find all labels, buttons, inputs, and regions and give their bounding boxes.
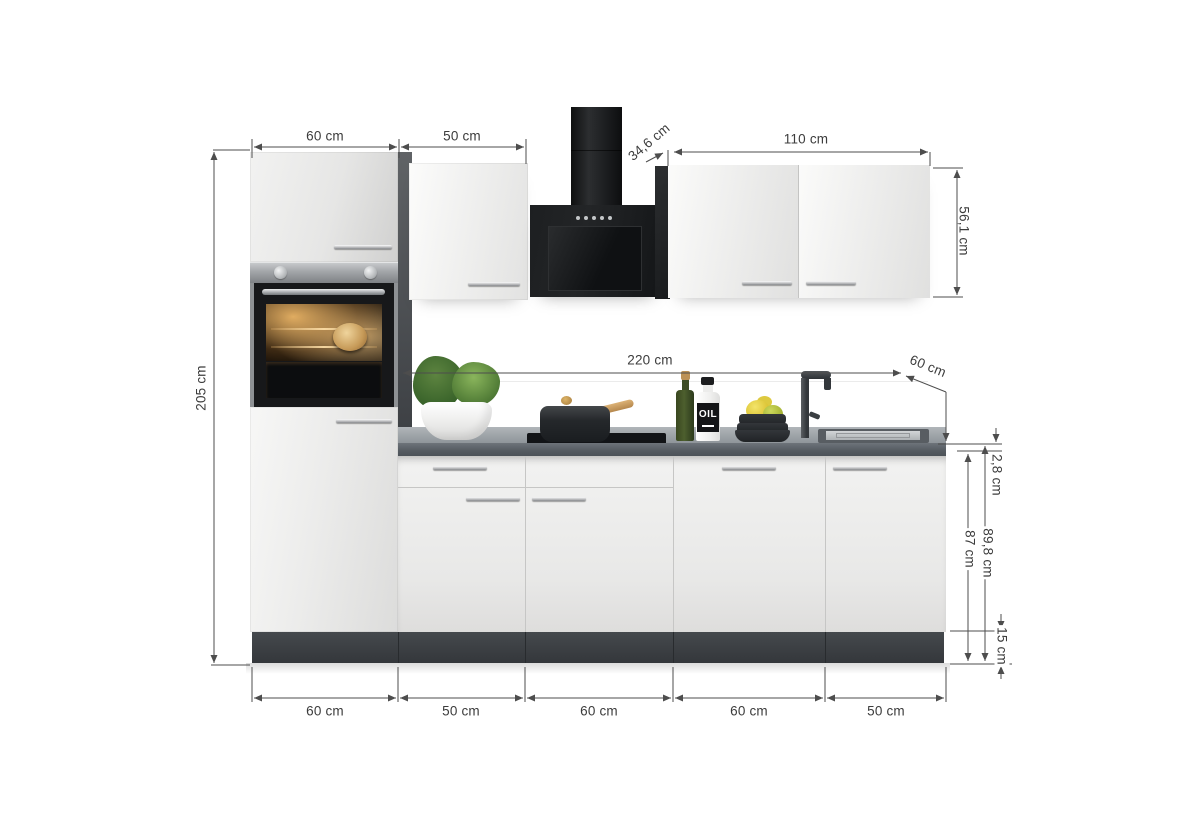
plinth-seam (825, 632, 826, 663)
hood-chimney-seam (571, 150, 622, 151)
plinth-seam (673, 632, 674, 663)
hood-glass-panel (548, 226, 642, 291)
faucet-lever (808, 411, 820, 420)
saucepan (540, 406, 610, 442)
upper-cabinet-50 (409, 163, 528, 300)
oil-bottle-green (676, 390, 694, 441)
base-drawer-handle (433, 466, 487, 470)
wall-cabinet-110 (668, 165, 930, 298)
dim-label-base-height: 87 cm (963, 528, 978, 570)
cabinet-seam (673, 456, 674, 632)
bowl (735, 430, 790, 442)
oven-door-handle (262, 289, 385, 295)
faucet-base (797, 431, 813, 440)
hood-chimney (571, 107, 622, 208)
plinth (252, 632, 944, 663)
tall-cabinet-bottom-door-handle (336, 419, 392, 423)
hood-button-icon (576, 216, 580, 220)
base-door-handle (532, 497, 586, 501)
dim-label-base-1-width: 60 cm (306, 704, 344, 719)
upper-cabinet-handle (468, 282, 520, 286)
oven-control-panel (250, 262, 398, 283)
dim-label-plinth-height: 15 cm (995, 625, 1010, 667)
sink-cabinet-handle (722, 466, 776, 470)
hood-button-icon (600, 216, 604, 220)
wall-cabinet-right-handle (806, 281, 856, 285)
dim-label-base-with-worktop-height: 89,8 cm (981, 526, 996, 579)
hood-button-icon (608, 216, 612, 220)
sink-basin (826, 431, 920, 440)
dim-label-wall-cabinet-width: 110 cm (784, 132, 828, 147)
oven-lower-glass (266, 362, 382, 398)
plinth-seam (525, 632, 526, 663)
hood-button-icon (584, 216, 588, 220)
hood-control-buttons (576, 216, 616, 222)
dim-label-base-2-width: 50 cm (442, 704, 480, 719)
base-cabinet-run (398, 456, 946, 632)
herb-plant (452, 362, 500, 406)
faucet-spout (824, 378, 831, 390)
wall-cabinet-left-handle (742, 281, 792, 285)
drawer-seam (398, 487, 673, 488)
base-door-handle (833, 466, 887, 470)
oil-bottle-label: OIL (697, 403, 719, 432)
dim-label-base-3-width: 60 cm (580, 704, 618, 719)
dim-label-wall-cabinet-depth: 34,6 cm (625, 120, 673, 163)
hood-button-icon (592, 216, 596, 220)
saucepan-lid-knob (561, 396, 572, 405)
dim-label-worktop-thickness: 2,8 cm (990, 454, 1005, 496)
tall-cabinet-bottom-door (250, 407, 398, 632)
base-door-handle (466, 497, 520, 501)
cabinet-seam (825, 456, 826, 632)
dim-label-worktop-length: 220 cm (627, 353, 672, 368)
dim-label-base-4-width: 60 cm (730, 704, 768, 719)
cabinet-seam (525, 456, 526, 632)
wall-cabinet-right-door (799, 165, 930, 298)
dim-label-worktop-depth: 60 cm (908, 352, 949, 380)
worktop-front-edge (398, 443, 946, 456)
plinth-seam (398, 632, 399, 663)
dim-label-wall-cabinet-height: 56,1 cm (957, 206, 972, 255)
dim-label-tall-unit-width: 60 cm (306, 129, 344, 144)
dim-label-upper-cabinet-width: 50 cm (443, 129, 481, 144)
wall-cabinet-left-door (668, 165, 799, 298)
dim-label-total-height: 205 cm (194, 365, 209, 410)
oven-knob-icon (364, 266, 377, 279)
floor-shadow (246, 663, 950, 674)
oven-knob-icon (274, 266, 287, 279)
oil-bottle-cap (701, 377, 714, 385)
faucet (801, 378, 809, 438)
oil-bottle-cork (681, 371, 690, 380)
tall-cabinet-top-door-handle (334, 245, 392, 249)
dim-label-base-5-width: 50 cm (867, 704, 905, 719)
oven-window (266, 304, 382, 361)
kitchen-product-dimension-diagram: OIL (0, 0, 1200, 817)
